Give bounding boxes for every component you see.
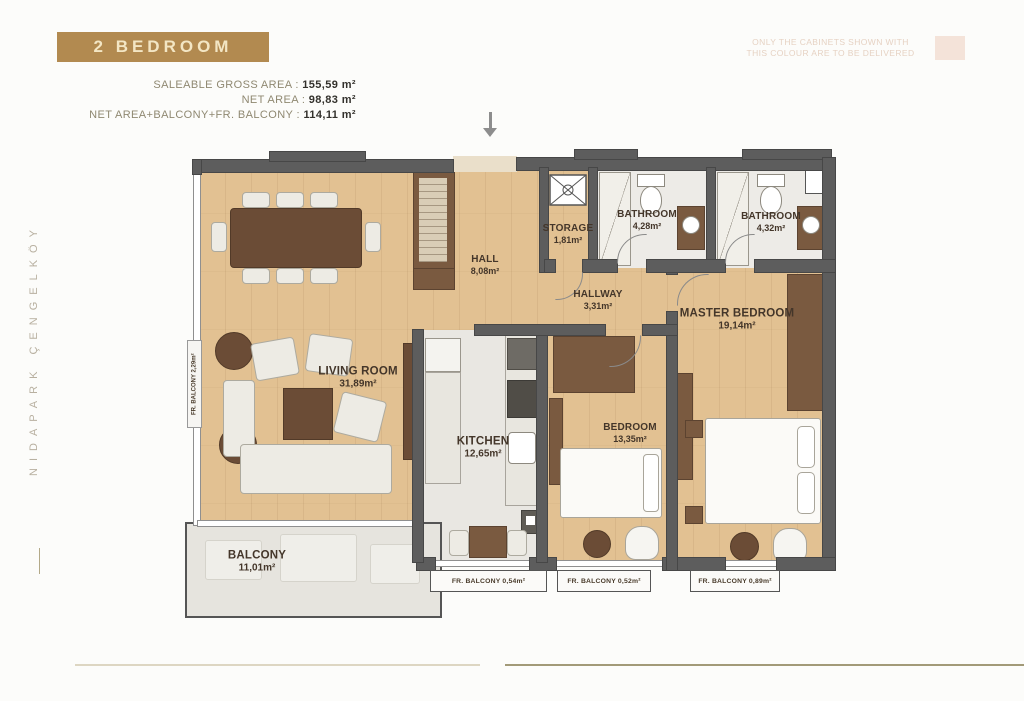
chair <box>242 192 270 208</box>
wall-column <box>743 150 831 159</box>
wall-column <box>575 150 637 159</box>
balcony-furniture <box>280 534 357 582</box>
chair <box>211 222 227 252</box>
watermark-tick <box>39 548 40 574</box>
kitchen-counter-left <box>425 372 461 484</box>
pillow <box>797 472 815 514</box>
side-table <box>215 332 253 370</box>
chair <box>449 530 469 556</box>
cabinet-color-swatch <box>935 36 965 60</box>
wall-hallway-south <box>475 325 605 335</box>
pouf <box>583 530 611 558</box>
project-watermark: NIDAPARK ÇENGELKÖY <box>28 210 50 490</box>
area-value: 114,11 m² <box>303 109 356 121</box>
lounge-chair <box>625 526 659 560</box>
room-name: LIVING ROOM <box>318 366 398 379</box>
room-name: BATHROOM <box>741 211 801 223</box>
area-sep: : <box>293 109 303 121</box>
room-name: KITCHEN <box>457 436 510 449</box>
nightstand <box>685 506 703 524</box>
room-name: MASTER BEDROOM <box>680 308 795 321</box>
chair <box>242 268 270 284</box>
stove-icon <box>507 380 537 418</box>
wall-living-kitchen <box>413 330 423 562</box>
pillow <box>797 426 815 468</box>
area-sep: : <box>292 79 302 91</box>
fr-balcony-bedroom-label: FR. BALCONY 0,52m² <box>557 570 651 592</box>
toilet-icon <box>760 186 782 214</box>
room-name: BEDROOM <box>603 422 657 434</box>
wall-top-left <box>197 160 453 172</box>
bathroom1-label: BATHROOM 4,28m² <box>617 209 677 231</box>
master-bedroom-label: MASTER BEDROOM 19,14m² <box>680 308 795 333</box>
bathroom2-label: BATHROOM 4,32m² <box>741 211 801 233</box>
room-name: BALCONY <box>228 550 286 563</box>
disclaimer-line2: THIS COLOUR ARE TO BE DELIVERED <box>728 48 933 59</box>
hall-label: HALL 8,08m² <box>471 254 500 276</box>
storage-shaft-icon <box>549 174 587 206</box>
room-area: 19,14m² <box>680 321 795 333</box>
room-name: HALLWAY <box>573 289 622 301</box>
cabinet-disclaimer: ONLY THE CABINETS SHOWN WITH THIS COLOUR… <box>728 37 933 59</box>
hall-closet-end <box>413 268 455 290</box>
entrance-landing <box>453 156 517 172</box>
room-area: 12,65m² <box>457 449 510 461</box>
room-area: 31,89m² <box>318 379 398 391</box>
area-label: NET AREA <box>242 94 299 106</box>
sink-icon <box>682 216 700 234</box>
chair <box>310 192 338 208</box>
kitchen-balcony-window <box>422 560 542 567</box>
wall-hallway-south2 <box>643 325 677 335</box>
bedroom-label: BEDROOM 13,35m² <box>603 422 657 444</box>
net-area-row: NET AREA : 98,83 m² <box>30 93 356 108</box>
wall-bottom <box>777 558 835 570</box>
room-name: HALL <box>471 254 500 266</box>
wall-bath-row <box>583 260 617 272</box>
saleable-gross-area-row: SALEABLE GROSS AREA : 155,59 m² <box>30 78 356 93</box>
area-value: 155,59 m² <box>302 79 356 91</box>
pouf <box>730 532 759 561</box>
room-area: 3,31m² <box>573 301 622 311</box>
wall-right <box>823 158 835 570</box>
fr-balcony-master-label: FR. BALCONY 0,89m² <box>690 570 780 592</box>
chair <box>365 222 381 252</box>
master-balcony-window <box>725 560 779 567</box>
oven-icon <box>507 338 537 370</box>
floorplan: FR. BALCONY 2,29m² FR. BALCONY 0,54m² FR… <box>185 148 847 623</box>
net-plus-balcony-row: NET AREA+BALCONY+FR. BALCONY : 114,11 m² <box>30 108 356 123</box>
chair <box>276 192 304 208</box>
entrance-arrowhead-icon <box>483 128 497 137</box>
room-area: 11,01m² <box>228 563 286 575</box>
fridge-icon <box>425 338 461 372</box>
kitchen-sink-icon <box>508 432 536 464</box>
wall-storage-bath1 <box>589 168 597 268</box>
wall-bedroom-master <box>667 312 677 570</box>
room-name: STORAGE <box>543 223 594 235</box>
room-area: 4,32m² <box>741 223 801 233</box>
room-area: 4,28m² <box>617 221 677 231</box>
kitchen-table <box>469 526 507 558</box>
hallway-label: HALLWAY 3,31m² <box>573 289 622 311</box>
area-label: SALEABLE GROSS AREA <box>153 79 291 91</box>
fr-balcony-kitchen-label: FR. BALCONY 0,54m² <box>430 570 547 592</box>
room-name: BATHROOM <box>617 209 677 221</box>
area-label: NET AREA+BALCONY+FR. BALCONY <box>89 109 293 121</box>
room-area: 8,08m² <box>471 266 500 276</box>
coffee-table <box>283 388 333 440</box>
wall-hall-storage <box>540 168 548 272</box>
pillow <box>643 454 659 512</box>
room-area: 1,81m² <box>543 235 594 245</box>
wall-bath-row <box>545 260 555 272</box>
wall-stub <box>193 160 201 174</box>
disclaimer-line1: ONLY THE CABINETS SHOWN WITH <box>728 37 933 48</box>
room-area: 13,35m² <box>603 434 657 444</box>
footer-rule-left <box>75 664 480 666</box>
wall-bath1-bath2 <box>707 168 715 268</box>
wall-top-right <box>517 158 835 170</box>
chair <box>310 268 338 284</box>
lounge-chair <box>773 528 807 562</box>
footer-rule-right <box>505 664 1024 666</box>
area-sep: : <box>298 94 308 106</box>
chair <box>507 530 527 556</box>
bedroom-balcony-window <box>547 560 677 567</box>
chair <box>276 268 304 284</box>
storage-label: STORAGE 1,81m² <box>543 223 594 245</box>
page-title: 2 BEDROOM <box>57 32 269 62</box>
armchair <box>250 336 300 381</box>
hall-closet-shelves <box>419 178 447 262</box>
living-balcony-window <box>197 520 421 527</box>
fr-balcony-side-label: FR. BALCONY 2,29m² <box>187 340 202 428</box>
wall-bath-row <box>647 260 725 272</box>
appliance-door <box>526 516 535 525</box>
wall-kitchen-bedroom <box>537 330 547 562</box>
area-value: 98,83 m² <box>309 94 356 106</box>
nightstand <box>685 420 703 438</box>
wall-bath-row <box>755 260 835 272</box>
kitchen-label: KITCHEN 12,65m² <box>457 436 510 461</box>
living-room-label: LIVING ROOM 31,89m² <box>318 366 398 391</box>
sink-icon <box>802 216 820 234</box>
dining-table <box>230 208 362 268</box>
wall-column <box>270 152 365 161</box>
balcony-label: BALCONY 11,01m² <box>228 550 286 575</box>
entrance-arrow-icon <box>489 112 492 129</box>
area-summary: SALEABLE GROSS AREA : 155,59 m² NET AREA… <box>30 78 356 123</box>
floorplan-page: 2 BEDROOM SALEABLE GROSS AREA : 155,59 m… <box>0 0 1024 701</box>
sofa <box>240 444 392 494</box>
